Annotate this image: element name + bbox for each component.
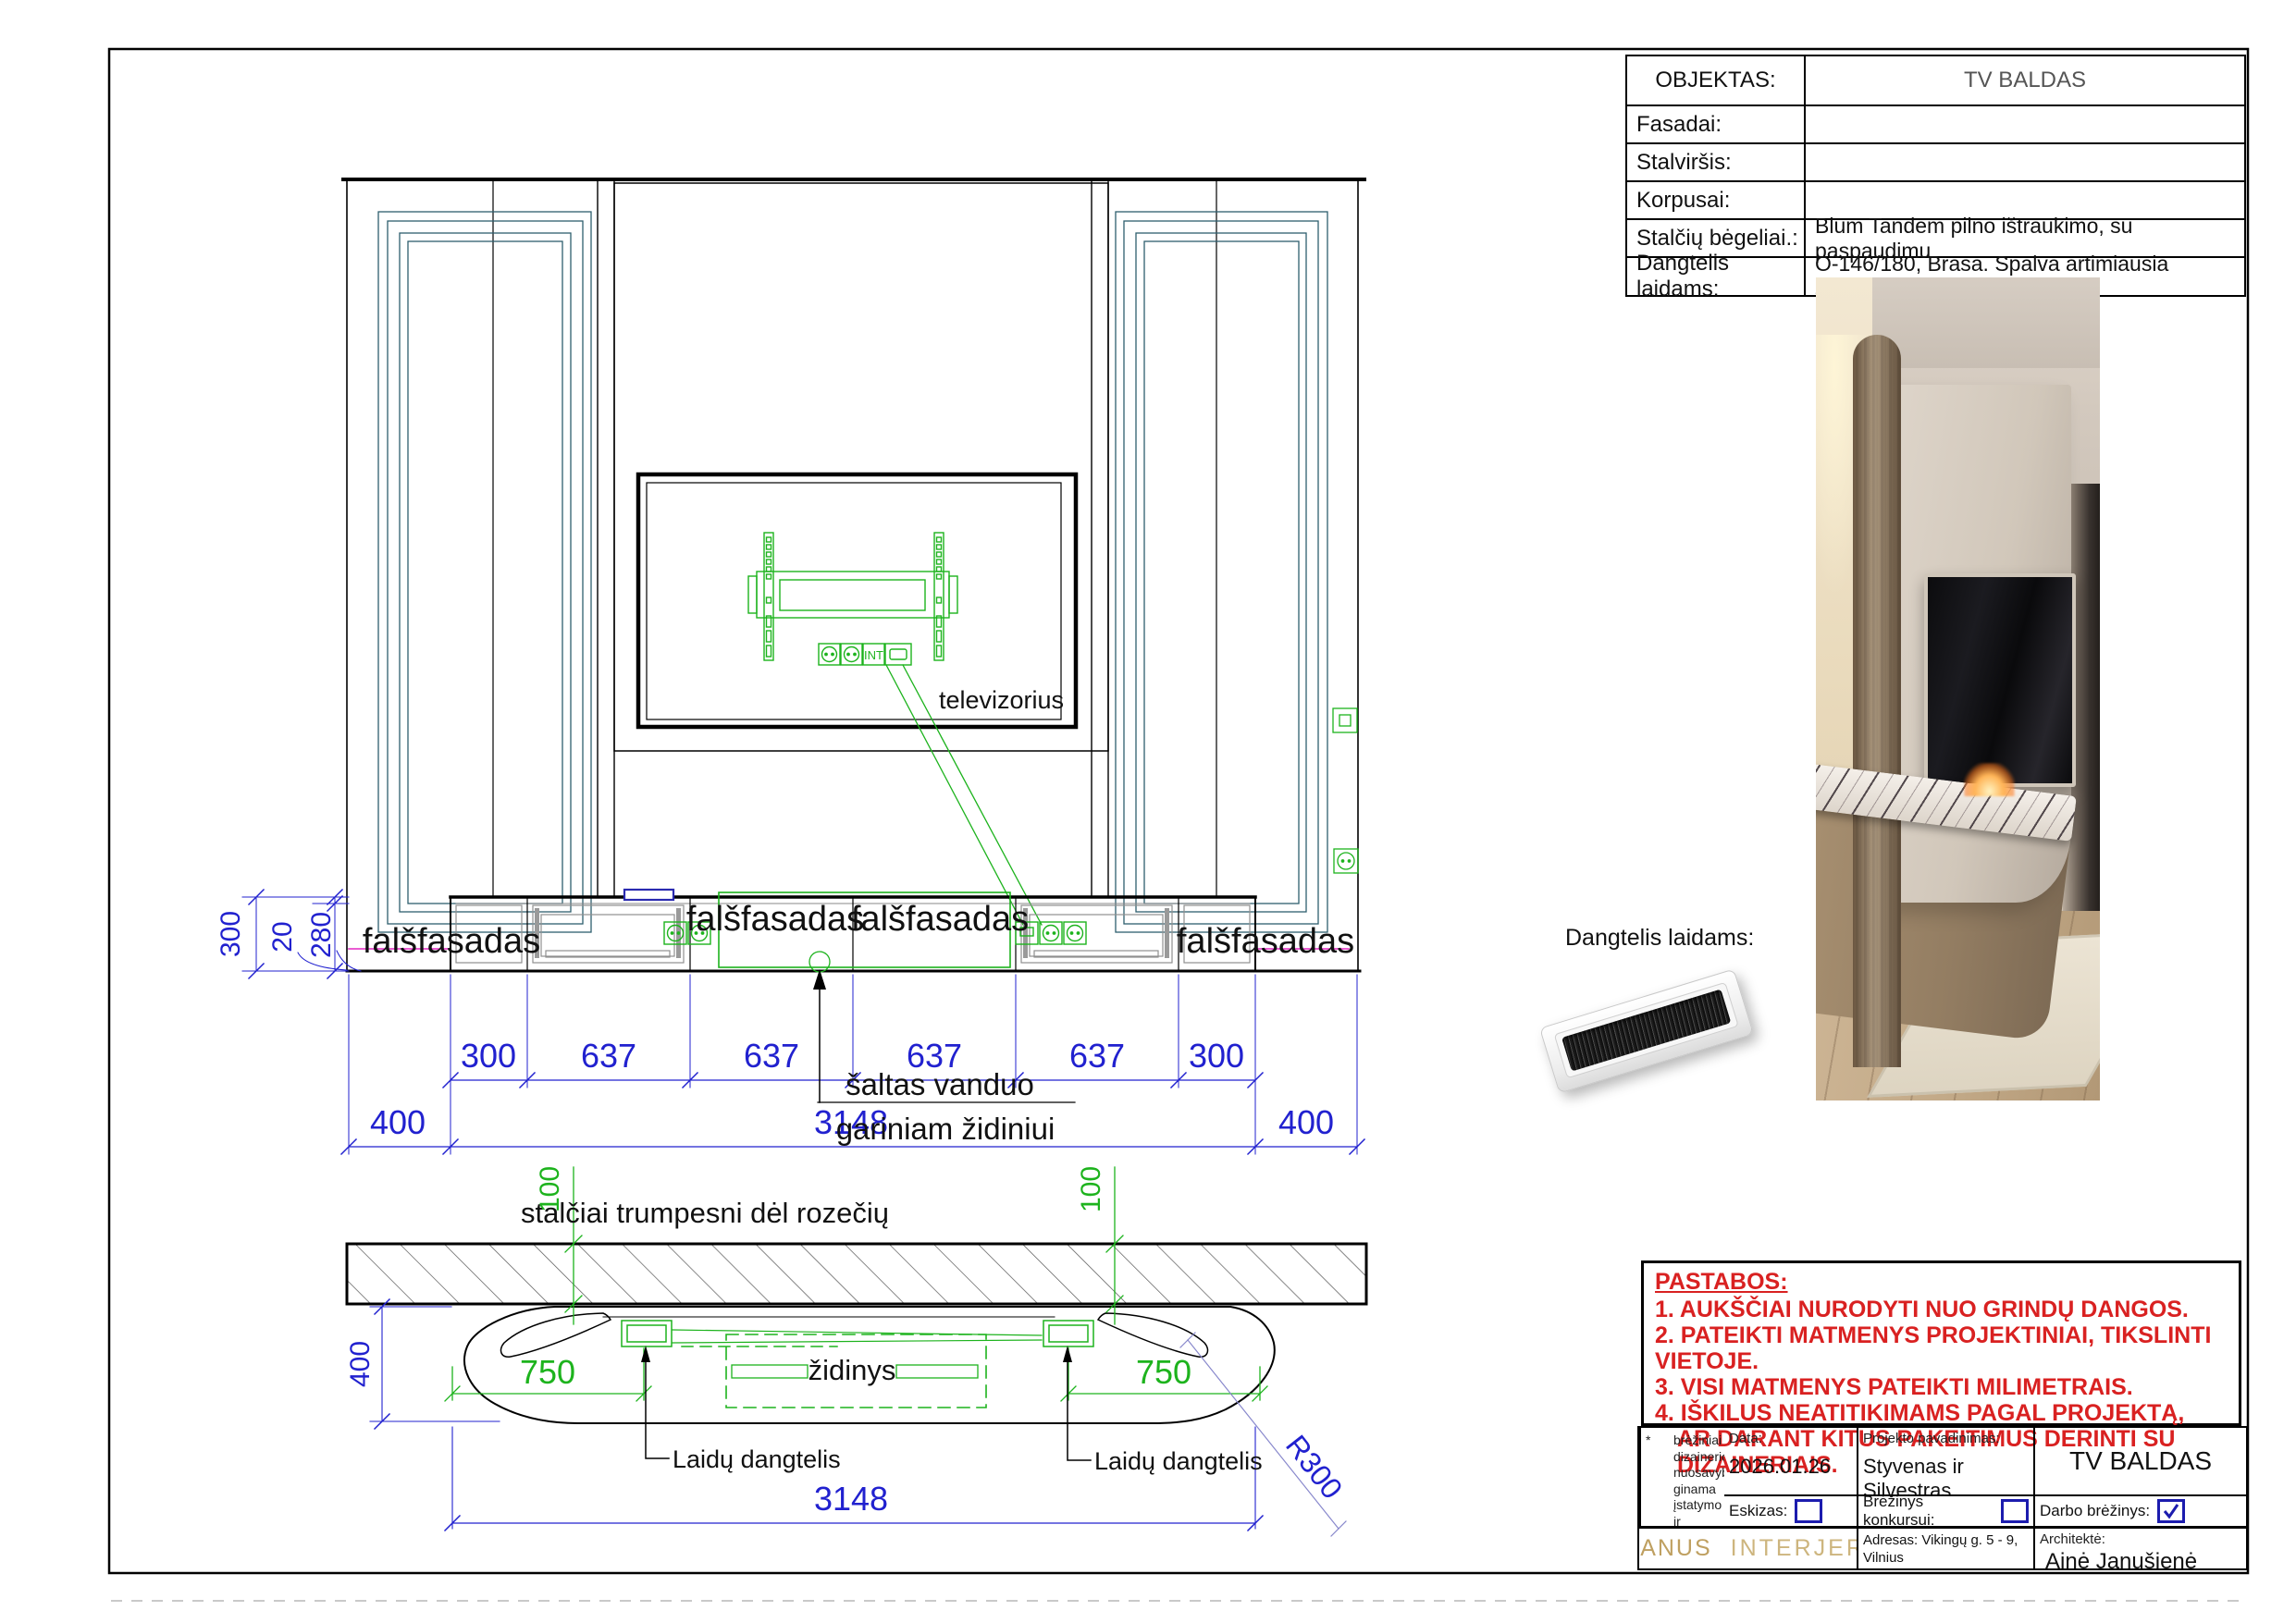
date-value: 2026.01.26 — [1729, 1455, 1852, 1479]
int-label: INT — [864, 648, 883, 662]
object-table: OBJEKTAS: TV BALDAS Fasadai: Stalviršis:… — [1625, 55, 2246, 297]
drawer-right — [1021, 905, 1172, 963]
legal-text-1: brėžiniai - dizainerio nuosavybė, ginama — [1673, 1432, 1724, 1497]
panel-label-1: falšfasadas — [363, 922, 540, 961]
dim-280: 280 — [306, 912, 337, 958]
konkursui-checkbox[interactable] — [2001, 1499, 2029, 1523]
eskizas-cell: Eskizas: — [1724, 1494, 1857, 1526]
konkursui-cell: Brėžinys konkursui: — [1857, 1494, 2033, 1526]
darbo-label: Darbo brėžinys: — [2040, 1502, 2150, 1520]
logo-word-1: IŠMANUS — [1639, 1535, 1712, 1562]
right-panel-frames — [1116, 212, 1327, 932]
fasadai-value — [1806, 106, 2244, 144]
check-icon — [2162, 1503, 2180, 1519]
architect-cell: Architektė: Ainė Janušienė Interjero diz… — [2033, 1526, 2246, 1568]
plan-400: 400 — [345, 1341, 376, 1387]
grommet-caption: Dangtelis laidams: — [1565, 925, 1754, 952]
plan-100-right: 100 — [1076, 1166, 1106, 1212]
seg-dim-6: 300 — [1189, 1037, 1244, 1075]
countertop-grommet-symbol — [624, 890, 673, 900]
tv-bracket — [748, 533, 957, 660]
photo-fireplace-flame — [1964, 763, 2015, 796]
panel-label-2: falšfasadas — [686, 900, 864, 939]
project-cell: Projekto pavadinimas: Styvenas ir Silves… — [1857, 1428, 2033, 1494]
cold-water-line2: gariniam židiniui — [836, 1112, 1055, 1146]
photo-wood-column — [1853, 335, 1901, 1067]
object-table-value: TV BALDAS — [1806, 56, 2244, 106]
eskizas-label: Eskizas: — [1729, 1502, 1787, 1520]
grommet-brush — [1562, 990, 1731, 1072]
photo-tv-screen — [1924, 573, 2077, 787]
drawing-sheet: televizorius INT falšfasadas falšfasadas… — [0, 0, 2296, 1623]
elevation-view — [242, 179, 1364, 1154]
dim-300v: 300 — [216, 911, 246, 957]
titleblock-title: TV BALDAS — [2033, 1428, 2246, 1494]
stalvirsis-value — [1806, 144, 2244, 182]
plan-750-right: 750 — [1136, 1353, 1191, 1391]
project-label: Projekto pavadinimas: — [1863, 1431, 2029, 1446]
dim-400-right: 400 — [1278, 1103, 1334, 1141]
address-cell: Adresas: Vikingų g. 5 - 9, Vilnius Tel.:… — [1857, 1526, 2033, 1568]
bracket-holes — [767, 537, 942, 657]
note-line-2: 2. PATEIKTI MATMENYS PROJEKTINIAI, TIKSL… — [1655, 1322, 2228, 1374]
cold-water-point — [809, 952, 830, 972]
legal-star-2 — [1646, 1497, 1673, 1526]
legal-text-2: įstatymo ir autorinių teisių. — [1673, 1497, 1723, 1526]
architect-label: Architektė: — [2040, 1531, 2241, 1547]
panel-label-4: falšfasadas — [1177, 922, 1354, 961]
phone-1: Tel.: +370 656 29003 — [1863, 1567, 2029, 1568]
address-line: Adresas: Vikingų g. 5 - 9, Vilnius — [1863, 1531, 2029, 1567]
plan-100-left: 100 — [535, 1166, 565, 1212]
note-line-4: 4. IŠKILUS NEATITIKIMAMS PAGAL PROJEKTĄ, — [1655, 1400, 2228, 1426]
note-line-3: 3. VISI MATMENYS PATEIKTI MILIMETRAIS. — [1655, 1374, 2228, 1400]
dim-20: 20 — [267, 921, 298, 952]
dangtelis-label: Dangtelis laidams: — [1627, 258, 1806, 295]
dim-400-left: 400 — [370, 1103, 426, 1141]
legal-notes: *brėžiniai - dizainerio nuosavybė, ginam… — [1639, 1428, 1724, 1526]
company-logo: IŠMANUS INTERJERAS — [1639, 1526, 1857, 1568]
plan-note: stalčiai trumpesni dėl rozečių — [521, 1197, 889, 1229]
date-cell: Data: 2026.01.26 — [1724, 1428, 1857, 1494]
darbo-cell: Darbo brėžinys: — [2033, 1494, 2246, 1526]
korpusai-label: Korpusai: — [1627, 182, 1806, 220]
cover-label-left: Laidų dangtelis — [673, 1445, 841, 1473]
drawer-left — [533, 905, 684, 963]
interior-photo — [1816, 277, 2100, 1100]
panel-label-3: falšfasadas — [851, 900, 1029, 939]
seg-dim-2: 637 — [581, 1037, 636, 1075]
grommet-image — [1524, 962, 1774, 1110]
cold-water-line1: šaltas vanduo — [846, 1067, 1034, 1101]
grommet-body — [1539, 968, 1754, 1093]
notes-box: PASTABOS: 1. AUKŠČIAI NURODYTI NUO GRIND… — [1641, 1260, 2241, 1426]
darbo-checkbox[interactable] — [2157, 1499, 2185, 1523]
note-line-1: 1. AUKŠČIAI NURODYTI NUO GRINDŲ DANGOS. — [1655, 1297, 2228, 1322]
right-wall-junction-box — [1333, 708, 1357, 732]
legal-star-1: * — [1646, 1432, 1673, 1497]
wall-hatch — [347, 1244, 1366, 1304]
fireplace-label: židinys — [809, 1354, 896, 1386]
logo-word-2: INTERJERAS — [1731, 1535, 1857, 1562]
seg-dim-5: 637 — [1069, 1037, 1125, 1075]
plan-750-left: 750 — [520, 1353, 575, 1391]
right-wall-socket — [1334, 849, 1358, 873]
plan-3148: 3148 — [814, 1480, 888, 1518]
date-label: Data: — [1729, 1431, 1852, 1446]
cover-label-right: Laidų dangtelis — [1094, 1447, 1263, 1475]
fasadai-label: Fasadai: — [1627, 106, 1806, 144]
title-block: Data: 2026.01.26 Projekto pavadinimas: S… — [1637, 1426, 2248, 1570]
konkursui-label: Brėžinys konkursui: — [1863, 1494, 1994, 1526]
seg-dim-3: 637 — [744, 1037, 799, 1075]
project-value: Styvenas ir Silvestras — [1863, 1455, 2029, 1494]
tv-label: televizorius — [939, 686, 1064, 714]
architect-name: Ainė Janušienė — [2045, 1549, 2241, 1568]
object-table-label: OBJEKTAS: — [1627, 56, 1806, 106]
stalvirsis-label: Stalviršis: — [1627, 144, 1806, 182]
seg-dim-1: 300 — [461, 1037, 516, 1075]
left-panel-frames — [378, 212, 591, 932]
eskizas-checkbox[interactable] — [1795, 1499, 1822, 1523]
notes-title: PASTABOS: — [1655, 1269, 1788, 1295]
